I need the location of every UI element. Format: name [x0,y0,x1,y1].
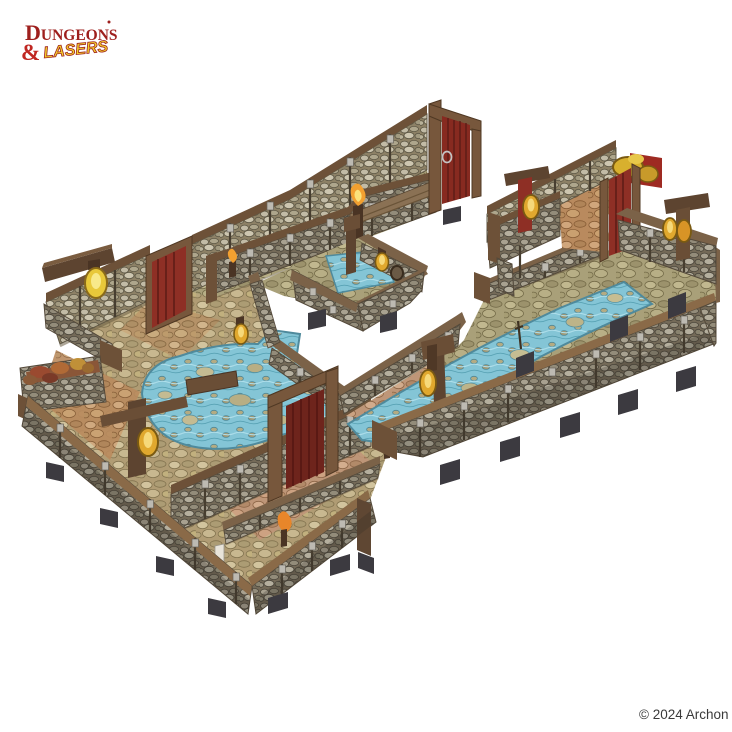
svg-text:&: & [21,40,40,65]
svg-text:© 2024 Archon: © 2024 Archon [639,707,729,722]
